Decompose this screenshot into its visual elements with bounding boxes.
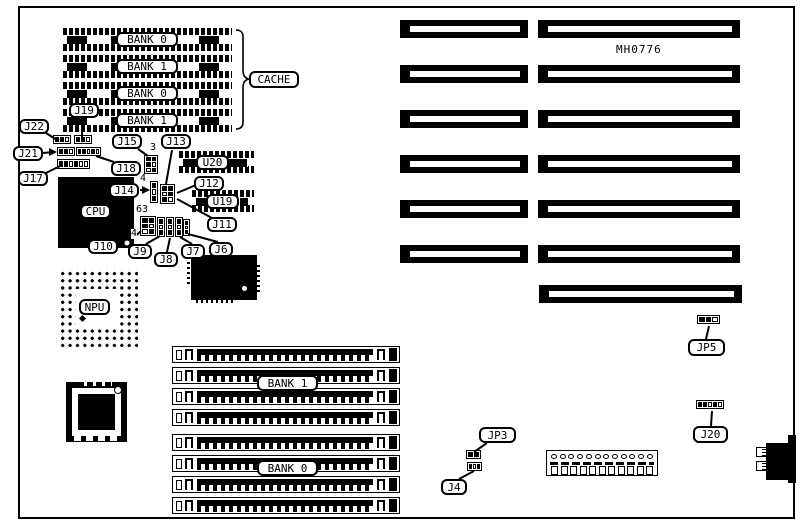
label-j11: J11	[207, 217, 237, 232]
isa-slot	[538, 65, 740, 83]
isa-slot	[538, 155, 740, 173]
simm-slot	[172, 434, 400, 451]
jumper-j14	[150, 181, 158, 203]
label-j21: J21	[13, 146, 43, 161]
isa-slot	[400, 110, 528, 128]
plcc-die	[78, 394, 115, 430]
qfp-pins-bottom	[196, 300, 236, 303]
label-j22: J22	[19, 119, 49, 134]
label-cache-bank0-row1: BANK 0	[116, 32, 178, 47]
label-j17: J17	[18, 171, 48, 186]
label-j8: J8	[154, 252, 178, 267]
label-j15: J15	[112, 134, 142, 149]
pin-marker-4b: 4	[131, 229, 137, 239]
isa-slot	[400, 65, 528, 83]
label-j12: J12	[194, 176, 224, 191]
jumper-j20	[696, 400, 724, 409]
label-j6: J6	[209, 242, 233, 257]
label-cache-bank0-row3: BANK 0	[116, 86, 178, 101]
simm-slot	[172, 346, 400, 363]
pin-marker-3: 3	[150, 143, 156, 153]
label-j4: J4	[441, 479, 467, 495]
label-j18: J18	[111, 161, 141, 176]
jumper-block-j15	[144, 155, 158, 174]
label-cache: CACHE	[249, 71, 299, 88]
pin-marker-63: 63	[136, 205, 148, 215]
label-jp5: JP5	[688, 339, 725, 356]
isa-slot	[538, 20, 740, 38]
jumper-j8	[166, 217, 174, 237]
simm-slot	[172, 497, 400, 514]
label-cache-bank1-row4: BANK 1	[116, 113, 178, 128]
isa-slot	[400, 20, 528, 38]
simm-slot	[172, 409, 400, 426]
isa-slot	[400, 155, 528, 173]
jumper-j22	[53, 135, 71, 144]
keyboard-connector-bracket	[788, 435, 796, 483]
label-j9: J9	[128, 244, 152, 259]
jumper-j6	[183, 219, 190, 236]
label-cache-bank1-row2: BANK 1	[116, 59, 178, 74]
power-connector-slots	[551, 466, 653, 475]
label-jp3: JP3	[479, 427, 516, 443]
label-cpu: CPU	[80, 204, 111, 219]
jumper-j21	[57, 147, 75, 156]
label-simm-bank1: BANK 1	[257, 375, 318, 391]
power-connector-key	[550, 462, 654, 465]
label-u20: U20	[196, 155, 229, 170]
qfp-pins-left	[187, 262, 190, 284]
jumper-j19	[74, 135, 92, 144]
isa-slot	[538, 110, 740, 128]
keyboard-plug	[756, 461, 767, 471]
isa-slot	[538, 245, 740, 263]
jumper-j17	[57, 159, 90, 169]
jumper-j7	[175, 217, 183, 237]
plcc-bottom-pins	[74, 433, 119, 441]
power-connector	[546, 450, 658, 476]
jumper-jp3	[466, 450, 481, 459]
label-j7: J7	[181, 244, 205, 259]
keyboard-plug	[756, 447, 767, 457]
jumper-jp5	[697, 315, 720, 324]
label-j19: J19	[69, 103, 99, 118]
qfp-chip	[191, 255, 257, 300]
jumper-block-j13-j12-j11	[160, 184, 175, 204]
label-j10: J10	[88, 239, 118, 254]
board-part-number: MH0776	[616, 43, 662, 56]
plcc-top-pins	[78, 380, 112, 386]
motherboard-diagram: MH0776	[0, 0, 803, 527]
isa-slot	[400, 200, 528, 218]
label-simm-bank0: BANK 0	[257, 460, 318, 476]
jumper-j18	[76, 147, 101, 156]
jumper-j9	[157, 217, 165, 237]
plcc-socket	[66, 382, 127, 442]
qfp-pin1-dot	[242, 286, 247, 291]
plcc-notch	[114, 386, 122, 394]
qfp-pins-right	[257, 262, 260, 292]
power-connector-pins	[551, 454, 653, 460]
isa-slot	[538, 200, 740, 218]
label-j13: J13	[161, 134, 191, 149]
label-j14: J14	[109, 183, 139, 198]
jumper-j4	[467, 462, 482, 471]
label-u19: U19	[206, 194, 239, 209]
isa-slot	[400, 245, 528, 263]
simm-slot	[172, 476, 400, 493]
label-j20: J20	[693, 426, 728, 443]
jumper-block-j10	[140, 216, 156, 236]
isa-slot	[539, 285, 742, 303]
label-npu: NPU	[79, 299, 110, 315]
pin-marker-4: 4	[140, 174, 146, 184]
